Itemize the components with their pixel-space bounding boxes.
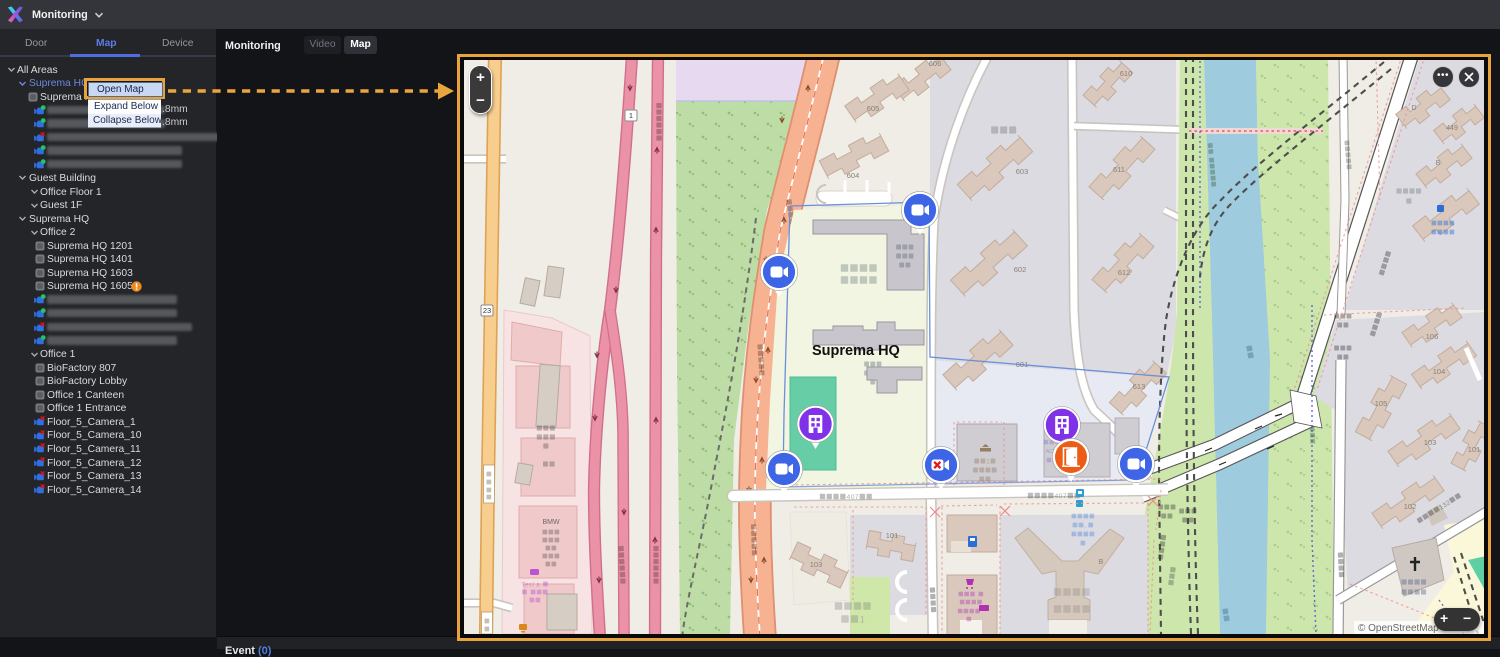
- svg-text:613: 613: [1133, 382, 1146, 391]
- svg-text:611: 611: [1113, 165, 1125, 174]
- svg-text:Suprema HQ: Suprema HQ: [812, 343, 900, 359]
- svg-text:B: B: [1099, 559, 1104, 566]
- svg-text:612: 612: [1118, 268, 1131, 277]
- svg-text:103: 103: [810, 560, 823, 569]
- svg-text:s: s: [529, 582, 532, 588]
- svg-text:105: 105: [1375, 399, 1388, 408]
- svg-text:604: 604: [847, 171, 860, 180]
- svg-text:B: B: [1436, 160, 1441, 167]
- svg-text:1: 1: [629, 111, 633, 120]
- svg-text:7: 7: [855, 494, 859, 501]
- svg-text:7: 7: [1063, 493, 1067, 500]
- svg-text:104: 104: [1433, 367, 1446, 376]
- svg-text:BMW: BMW: [542, 519, 560, 526]
- svg-text:603: 603: [1016, 167, 1029, 176]
- svg-text:602: 602: [1014, 265, 1027, 274]
- svg-text:610: 610: [1120, 69, 1133, 78]
- svg-text:1: 1: [986, 458, 990, 465]
- svg-text:l: l: [533, 582, 534, 588]
- svg-text:1: 1: [860, 615, 865, 626]
- svg-text:101: 101: [886, 531, 899, 540]
- svg-text:605: 605: [867, 104, 880, 113]
- svg-text:101: 101: [1468, 445, 1481, 454]
- svg-text:106: 106: [1426, 332, 1439, 341]
- svg-text:D: D: [1411, 105, 1416, 112]
- svg-text:103: 103: [1424, 438, 1437, 447]
- svg-text:449: 449: [1446, 125, 1458, 132]
- svg-text:102: 102: [1404, 502, 1417, 511]
- svg-text:23: 23: [483, 306, 491, 315]
- svg-text:606: 606: [929, 60, 942, 68]
